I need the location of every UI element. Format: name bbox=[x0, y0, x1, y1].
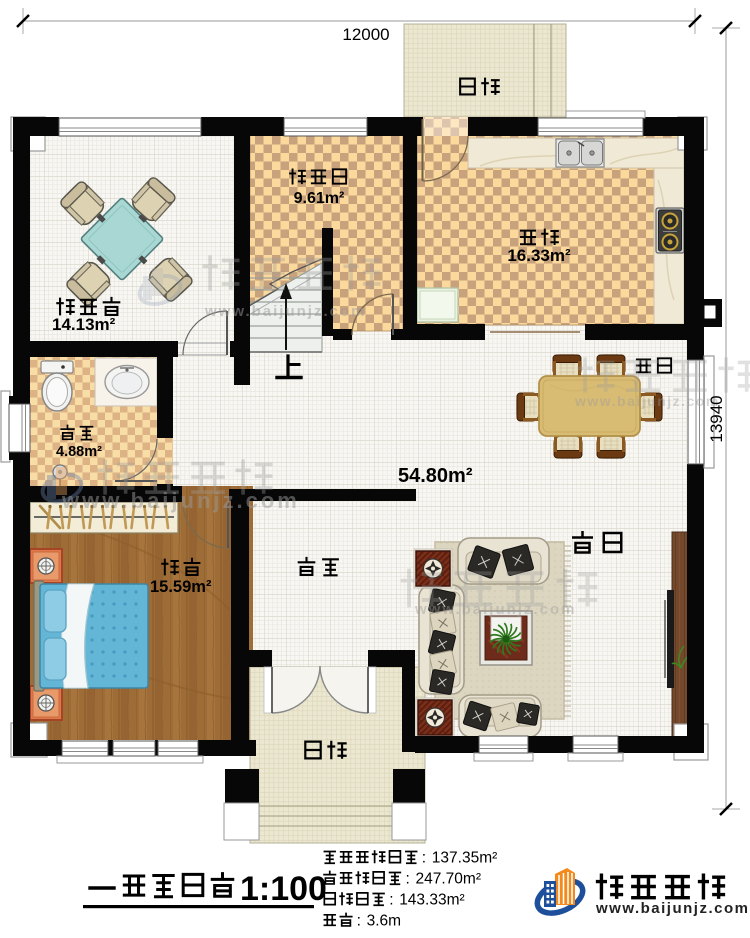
svg-text::: : bbox=[357, 913, 361, 930]
svg-text:137.35m²: 137.35m² bbox=[432, 850, 497, 867]
svg-text:1:100: 1:100 bbox=[240, 870, 327, 908]
svg-text::: : bbox=[389, 892, 393, 909]
svg-text:15.59m²: 15.59m² bbox=[150, 578, 212, 596]
svg-text:9.61m²: 9.61m² bbox=[294, 190, 345, 207]
svg-text:www.baijunjz.com: www.baijunjz.com bbox=[595, 900, 749, 917]
svg-text::: : bbox=[406, 871, 410, 888]
svg-text:www.baijunjz.com: www.baijunjz.com bbox=[574, 393, 720, 409]
svg-text:14.13m²: 14.13m² bbox=[52, 315, 116, 334]
svg-text:www.baijunjz.com: www.baijunjz.com bbox=[414, 601, 576, 618]
svg-text:16.33m²: 16.33m² bbox=[507, 246, 571, 265]
svg-text:www.baijunjz.com: www.baijunjz.com bbox=[204, 303, 366, 320]
svg-text:3.6m: 3.6m bbox=[367, 913, 401, 930]
svg-text:www.baijunjz.com: www.baijunjz.com bbox=[61, 488, 300, 513]
svg-text:13940: 13940 bbox=[707, 395, 726, 442]
svg-text:12000: 12000 bbox=[342, 25, 389, 44]
svg-text:247.70m²: 247.70m² bbox=[416, 871, 481, 888]
svg-text:4.88m²: 4.88m² bbox=[56, 444, 102, 460]
svg-text:54.80m²: 54.80m² bbox=[398, 465, 473, 487]
svg-text:143.33m²: 143.33m² bbox=[399, 892, 464, 909]
svg-text::: : bbox=[422, 850, 426, 867]
